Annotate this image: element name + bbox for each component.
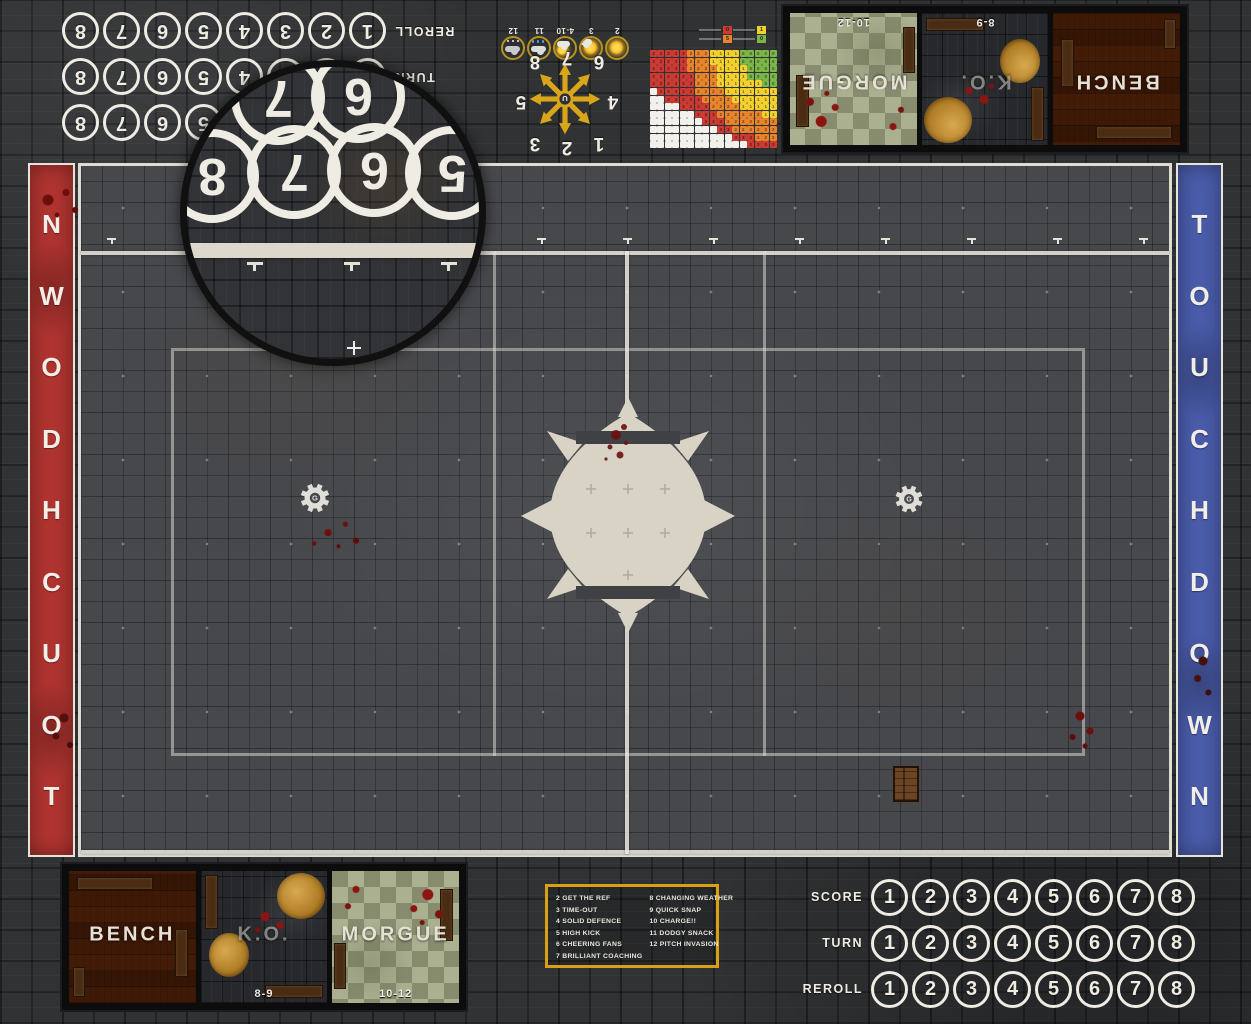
range-chart-cell [650, 141, 657, 148]
turn-circle-3[interactable]: 3 [953, 925, 990, 962]
range-chart-cell: 3 [680, 73, 687, 80]
banner-letter: O [1189, 283, 1209, 309]
dugout-label: K.O. [922, 69, 1049, 92]
range-chart-cell [672, 111, 679, 118]
range-chart-cell: 0 [747, 58, 754, 65]
range-chart-cell: 3 [672, 80, 679, 87]
range-chart-cell: 2 [695, 80, 702, 87]
range-chart-cell: 1 [770, 88, 777, 95]
dugout-range: 10-12 [790, 16, 917, 28]
score-circle-1[interactable]: 1 [871, 879, 908, 916]
range-chart-cell: 2 [710, 96, 717, 103]
range-chart-cell: 3 [665, 58, 672, 65]
range-chart-cell [657, 126, 664, 133]
range-chart-cell: 2 [702, 80, 709, 87]
hay-pile [277, 873, 325, 919]
banner-letter: U [1190, 354, 1209, 380]
range-chart-cell: 3 [672, 65, 679, 72]
dugout-label: MORGUE [790, 69, 917, 92]
range-chart-cell: 0 [762, 80, 769, 87]
range-chart-cell: 3 [650, 80, 657, 87]
score-circle-5[interactable]: 5 [1035, 879, 1072, 916]
reroll-circle-3[interactable]: 3 [953, 971, 990, 1008]
range-chart-cell: 2 [732, 118, 739, 125]
range-chart-cell [672, 134, 679, 141]
range-chart-cell [732, 141, 739, 148]
range-chart-cell: 2 [710, 80, 717, 87]
range-chart-cell [665, 111, 672, 118]
range-chart-cell: 3 [680, 80, 687, 87]
range-chart-cell [717, 134, 724, 141]
range-chart-cell [665, 126, 672, 133]
turn-circle-1[interactable]: 1 [871, 925, 908, 962]
dugout-panel-bench[interactable]: BENCH [1053, 13, 1180, 145]
dugout-range: 10-12 [332, 988, 459, 1000]
boundary-tick [623, 238, 632, 244]
range-chart-cell [710, 134, 717, 141]
range-chart-cell [687, 118, 694, 125]
range-chart-cell: 2 [732, 111, 739, 118]
range-chart-cell: 3 [657, 65, 664, 72]
range-chart-cell: 1 [740, 103, 747, 110]
blood-splat [873, 93, 913, 141]
range-chart-cell: 0 [747, 73, 754, 80]
range-chart-cell [695, 118, 702, 125]
range-chart-cell [695, 141, 702, 148]
kickoff-entry: 7 BRILLIANT COACHING [556, 951, 642, 963]
range-chart-cell: 0 [762, 50, 769, 57]
scatter-number-5: 5 [510, 90, 532, 112]
range-chart-cell: 2 [725, 103, 732, 110]
range-chart-cell: 2 [740, 111, 747, 118]
turn-circle-6[interactable]: 6 [144, 59, 181, 96]
range-chart-cell: 2 [710, 103, 717, 110]
range-chart-cell: 2 [755, 126, 762, 133]
dugout-panel-morgue[interactable]: MORGUE10-12 [790, 13, 917, 145]
reroll-circle-1[interactable]: 1 [349, 13, 386, 50]
reroll-circle-1[interactable]: 1 [871, 971, 908, 1008]
range-chart-cell: 3 [695, 96, 702, 103]
boundary-tick [795, 238, 804, 244]
score-circle-3[interactable]: 3 [953, 879, 990, 916]
range-chart-cell: 1 [747, 96, 754, 103]
banner-letter: H [42, 497, 61, 523]
range-chart-cell: 3 [717, 126, 724, 133]
range-chart-cell: 2 [740, 126, 747, 133]
legend-text [699, 29, 721, 31]
magnified-grid-cross [347, 341, 361, 355]
dugout-top-right[interactable]: BENCHK.O.8-9MORGUE10-12 [783, 6, 1187, 152]
score-circle-7[interactable]: 7 [1117, 879, 1154, 916]
range-chart-cell: 2 [702, 50, 709, 57]
range-chart-cell: 1 [770, 111, 777, 118]
range-chart-cell: 2 [717, 88, 724, 95]
range-chart-cell [740, 141, 747, 148]
range-chart-cell: 3 [755, 141, 762, 148]
turn-circle-6[interactable]: 6 [1076, 925, 1113, 962]
range-chart-cell: 3 [672, 50, 679, 57]
right-scrimmage-line [763, 251, 766, 756]
magnified-circle-5: 5 [405, 126, 486, 220]
magnified-tick [441, 262, 457, 271]
range-chart-cell: 2 [732, 103, 739, 110]
range-chart-cell: 3 [680, 58, 687, 65]
banner-letter: D [42, 426, 61, 452]
range-chart-cell [650, 96, 657, 103]
range-chart-cell [680, 126, 687, 133]
reroll-label: REROLL [394, 24, 460, 38]
kickoff-event-table: 2 GET THE REF3 TIME-OUT4 SOLID DEFENCE5 … [545, 884, 719, 968]
range-chart-cell [650, 118, 657, 125]
boundary-tick [881, 238, 890, 244]
kickoff-entry: 8 CHANGING WEATHER [649, 893, 733, 905]
left-scrimmage-line [493, 251, 496, 756]
turn-circle-5[interactable]: 5 [1035, 925, 1072, 962]
kickoff-entry: 6 CHEERING FANS [556, 939, 642, 951]
range-chart-cell: 3 [665, 88, 672, 95]
wooden-crate[interactable] [893, 766, 919, 802]
legend-swatch: 0 [723, 26, 732, 34]
range-chart-cell: 3 [710, 118, 717, 125]
turn-circle-7[interactable]: 7 [103, 59, 140, 96]
range-chart-cell: 3 [657, 73, 664, 80]
range-chart-cell [672, 118, 679, 125]
reroll-label: REROLL [795, 982, 863, 996]
banner-letter: C [42, 569, 61, 595]
range-chart-cell: 2 [702, 96, 709, 103]
banner-letter: T [1192, 211, 1208, 237]
range-chart-cell: 3 [680, 88, 687, 95]
range-chart-cell: 0 [770, 80, 777, 87]
legend-group: 10 [733, 26, 766, 44]
blood-splat [336, 875, 376, 923]
range-chart-cell: 0 [762, 65, 769, 72]
range-chart-cell: 2 [687, 58, 694, 65]
range-chart-cell: 0 [740, 50, 747, 57]
range-chart-cell: 1 [732, 96, 739, 103]
kickoff-entry: 5 HIGH KICK [556, 928, 642, 940]
range-chart-cell: 3 [747, 141, 754, 148]
score-circle-6[interactable]: 6 [144, 105, 181, 142]
banner-letter: N [1190, 783, 1209, 809]
range-chart-cell: 1 [747, 88, 754, 95]
range-chart-cell: 3 [665, 65, 672, 72]
range-chart-cell: 3 [665, 96, 672, 103]
range-chart-cell [710, 126, 717, 133]
dugout-bottom-left[interactable]: BENCHK.O.8-9MORGUE10-12 [62, 864, 466, 1010]
range-chart-cell [665, 141, 672, 148]
range-chart-cell: 1 [740, 65, 747, 72]
score-circle-2[interactable]: 2 [912, 879, 949, 916]
scatter-number-7: 7 [556, 46, 578, 68]
reroll-circle-6[interactable]: 6 [1076, 971, 1113, 1008]
range-chart-cell: 3 [717, 118, 724, 125]
gear-logo-icon: G [296, 479, 334, 517]
banner-letter: O [1189, 640, 1209, 666]
range-chart-cell [680, 111, 687, 118]
range-chart-cell [695, 134, 702, 141]
range-chart-cell: 2 [747, 111, 754, 118]
scatter-number-4: 4 [602, 90, 624, 112]
score-circle-8[interactable]: 8 [1158, 879, 1195, 916]
range-chart-cell [687, 134, 694, 141]
range-chart-cell: 0 [762, 58, 769, 65]
range-chart-cell: 3 [740, 134, 747, 141]
dugout-label: BENCH [69, 924, 196, 947]
range-chart-cell: 1 [732, 80, 739, 87]
range-chart-cell: 1 [770, 103, 777, 110]
dugout-range: 8-9 [922, 16, 1049, 28]
banner-letter: U [42, 640, 61, 666]
range-chart-cell: 3 [687, 88, 694, 95]
range-chart-cell: 0 [747, 65, 754, 72]
range-chart-cell [710, 141, 717, 148]
range-chart-cell: 1 [770, 96, 777, 103]
banner-letter: W [39, 283, 64, 309]
center-ball-emblem [518, 395, 738, 635]
turn-circle-7[interactable]: 7 [1117, 925, 1154, 962]
range-chart-cell: 1 [710, 58, 717, 65]
range-chart-cell: 1 [725, 80, 732, 87]
weather-value: 3 [589, 26, 594, 35]
kickoff-entry: 11 DODGY SNACK [649, 928, 733, 940]
range-chart-cell: 3 [710, 111, 717, 118]
range-chart-cell [702, 141, 709, 148]
range-chart-cell: 0 [762, 73, 769, 80]
legend-swatch: 5 [723, 35, 732, 43]
reroll-circle-6[interactable]: 6 [144, 13, 181, 50]
reroll-circle-8[interactable]: 8 [62, 13, 99, 50]
range-chart-cell: 2 [762, 126, 769, 133]
range-chart-cell [687, 126, 694, 133]
dugout-label: MORGUE [332, 924, 459, 947]
range-chart-cell: 3 [725, 126, 732, 133]
kickoff-entry: 9 QUICK SNAP [649, 905, 733, 917]
range-chart-cell: 3 [702, 103, 709, 110]
range-chart-cell: 1 [740, 88, 747, 95]
range-chart-cell: 3 [650, 58, 657, 65]
range-chart-cell: 1 [732, 88, 739, 95]
magnified-tick [344, 262, 360, 271]
range-chart-cell [687, 141, 694, 148]
boundary-tick [107, 238, 116, 244]
range-chart-cell: 1 [762, 103, 769, 110]
legend-swatch: 0 [757, 35, 766, 43]
tracker-row: SCORE12345678 [795, 876, 1201, 918]
scatter-number-6: 6 [588, 50, 610, 72]
reroll-circle-5[interactable]: 5 [185, 13, 222, 50]
range-chart-cell: 2 [695, 50, 702, 57]
range-chart-cell: 2 [702, 65, 709, 72]
range-chart-cell: 2 [710, 65, 717, 72]
range-chart-cell: 3 [687, 96, 694, 103]
tracker-row: REROLL12345678 [58, 10, 460, 52]
reroll-circle-2[interactable]: 2 [912, 971, 949, 1008]
range-chart-cell: 3 [665, 73, 672, 80]
range-chart-cell [695, 126, 702, 133]
panel-trim [1031, 87, 1044, 141]
range-chart-cell: 2 [747, 126, 754, 133]
reroll-circle-7[interactable]: 7 [103, 13, 140, 50]
range-chart-cell [725, 141, 732, 148]
range-chart-cell: 0 [770, 65, 777, 72]
turn-circle-8[interactable]: 8 [1158, 925, 1195, 962]
range-chart-cell: 2 [755, 111, 762, 118]
range-chart-cell [680, 141, 687, 148]
svg-text:U: U [562, 94, 568, 103]
range-chart-cell: 0 [755, 65, 762, 72]
range-chart-cell [717, 141, 724, 148]
range-chart-cell [657, 103, 664, 110]
range-chart-cell: 2 [725, 111, 732, 118]
boundary-tick [1053, 238, 1062, 244]
turn-circle-4[interactable]: 4 [994, 925, 1031, 962]
range-chart-cell: 3 [672, 88, 679, 95]
dugout-panel-ko[interactable]: K.O.8-9 [922, 13, 1049, 145]
range-chart-cell: 2 [695, 73, 702, 80]
legend-group: 05 [699, 26, 732, 44]
legend-text [733, 38, 755, 40]
range-chart-cell: 3 [680, 50, 687, 57]
range-chart-cell: 1 [717, 80, 724, 87]
range-chart-cell: 2 [702, 88, 709, 95]
range-chart-cell [665, 118, 672, 125]
reroll-circle-4[interactable]: 4 [994, 971, 1031, 1008]
range-chart-cell: 2 [732, 126, 739, 133]
legend-swatch: 1 [757, 26, 766, 34]
range-chart-cell: 0 [755, 73, 762, 80]
range-chart-cell: 2 [740, 118, 747, 125]
range-chart-cell: 2 [762, 118, 769, 125]
score-circle-4[interactable]: 4 [994, 879, 1031, 916]
range-chart-cell: 2 [725, 96, 732, 103]
kickoff-entry: 12 PITCH INVASION [649, 939, 733, 951]
range-chart-cell: 3 [650, 50, 657, 57]
range-chart-cell: 1 [717, 65, 724, 72]
dugout-panel-ko[interactable]: K.O.8-9 [201, 871, 328, 1003]
scatter-number-3: 3 [524, 132, 546, 154]
range-chart-cell: 3 [732, 134, 739, 141]
tracker-row: TURN12345678 [795, 922, 1201, 964]
range-chart-cell: 3 [702, 111, 709, 118]
range-chart-cell: 0 [770, 58, 777, 65]
range-chart-cell: 3 [665, 80, 672, 87]
range-chart-cell [687, 111, 694, 118]
range-chart-cell [657, 134, 664, 141]
panel-trim [334, 943, 346, 989]
range-chart-cell: 3 [770, 141, 777, 148]
range-chart-cell: 1 [762, 111, 769, 118]
panel-trim [903, 27, 915, 73]
range-chart-cell: 2 [687, 50, 694, 57]
range-chart-cell: 0 [770, 73, 777, 80]
range-chart-cell: 2 [702, 73, 709, 80]
panel-trim [1164, 19, 1176, 49]
range-chart-cell [672, 141, 679, 148]
range-chart-cell [657, 118, 664, 125]
range-chart-cell: 2 [762, 134, 769, 141]
tracker-bottom-right: SCORE12345678TURN12345678REROLL12345678 [795, 876, 1201, 1010]
turn-circle-5[interactable]: 5 [185, 59, 222, 96]
range-chart-cell [650, 134, 657, 141]
score-circle-7[interactable]: 7 [103, 105, 140, 142]
range-chart-cell [650, 111, 657, 118]
range-chart-cell: 3 [687, 73, 694, 80]
reroll-circle-5[interactable]: 5 [1035, 971, 1072, 1008]
touchdown-banner-right: TOUCHDOWN [1176, 163, 1223, 857]
range-chart-cell: 1 [732, 73, 739, 80]
reroll-circle-8[interactable]: 8 [1158, 971, 1195, 1008]
dugout-range: 8-9 [201, 988, 328, 1000]
magnified-boundary-line [180, 243, 486, 258]
range-chart-cell: 1 [747, 80, 754, 87]
svg-text:G: G [906, 495, 912, 504]
scatter-number-2: 2 [556, 136, 578, 158]
range-chart-cell: 2 [747, 118, 754, 125]
banner-letter: H [1190, 497, 1209, 523]
range-chart-cell: 2 [755, 118, 762, 125]
weather-value: 11 [534, 26, 543, 35]
range-chart-cell: 3 [650, 65, 657, 72]
reroll-circle-3[interactable]: 3 [267, 13, 304, 50]
tracker-row: REROLL12345678 [795, 968, 1201, 1010]
turn-circle-2[interactable]: 2 [912, 925, 949, 962]
range-chart-cell: 2 [725, 118, 732, 125]
score-circle-6[interactable]: 6 [1076, 879, 1113, 916]
range-chart-cell: 3 [680, 65, 687, 72]
dugout-panel-morgue[interactable]: MORGUE10-12 [332, 871, 459, 1003]
score-circle-8[interactable]: 8 [62, 105, 99, 142]
reroll-circle-4[interactable]: 4 [226, 13, 263, 50]
range-chart-cell: 1 [755, 80, 762, 87]
kickoff-entry: 4 SOLID DEFENCE [556, 916, 642, 928]
range-chart-cell: 1 [717, 58, 724, 65]
range-chart-cell: 0 [755, 58, 762, 65]
banner-letter: T [44, 783, 60, 809]
range-chart-grid: 3333322211110000033333222111100000333332… [650, 50, 777, 148]
range-chart-cell: 1 [732, 50, 739, 57]
range-chart-cell: 3 [687, 103, 694, 110]
range-chart-cell: 3 [672, 73, 679, 80]
panel-trim [73, 967, 85, 997]
range-chart-cell [725, 134, 732, 141]
turn-circle-8[interactable]: 8 [62, 59, 99, 96]
range-chart-cell: 1 [755, 103, 762, 110]
reroll-circle-2[interactable]: 2 [308, 13, 345, 50]
range-chart-cell: 3 [650, 73, 657, 80]
reroll-circle-7[interactable]: 7 [1117, 971, 1154, 1008]
dugout-panel-bench[interactable]: BENCH [69, 871, 196, 1003]
range-chart-cell: 2 [687, 65, 694, 72]
range-chart-cell: 3 [695, 111, 702, 118]
range-chart-cell [650, 103, 657, 110]
svg-text:G: G [312, 494, 318, 503]
range-chart-cell: 3 [672, 96, 679, 103]
range-chart-cell: 1 [747, 103, 754, 110]
range-chart-cell: 3 [680, 103, 687, 110]
range-chart-cell: 2 [770, 126, 777, 133]
range-chart-cell: 1 [762, 96, 769, 103]
range-chart-cell [657, 111, 664, 118]
kickoff-entry: 10 CHARGE!! [649, 916, 733, 928]
range-chart-cell: 2 [702, 58, 709, 65]
range-chart-cell: 2 [770, 118, 777, 125]
range-chart-cell: 1 [732, 58, 739, 65]
range-chart-cell: 3 [672, 58, 679, 65]
range-chart-cell [665, 103, 672, 110]
range-chart-cell [672, 126, 679, 133]
kickoff-entry: 3 TIME-OUT [556, 905, 642, 917]
